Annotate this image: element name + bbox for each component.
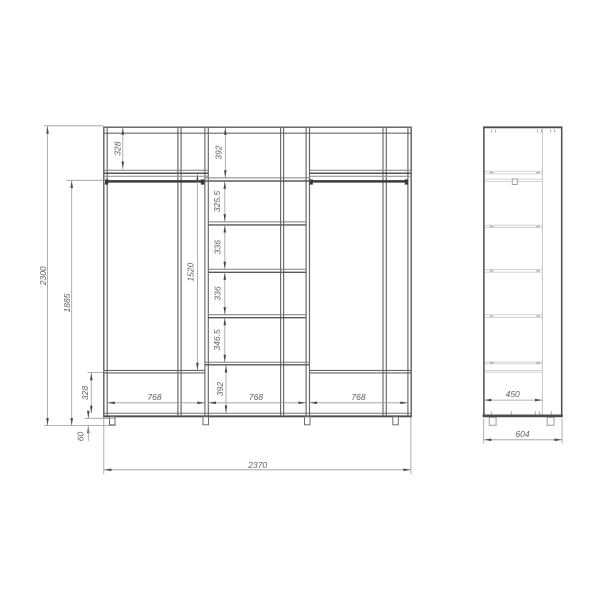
svg-text:328: 328 — [80, 386, 90, 400]
svg-text:392: 392 — [215, 382, 225, 396]
svg-text:325.5: 325.5 — [212, 191, 222, 213]
svg-text:2300: 2300 — [38, 266, 48, 286]
svg-text:346.5: 346.5 — [212, 329, 222, 351]
svg-text:768: 768 — [249, 392, 263, 402]
svg-text:60: 60 — [76, 432, 86, 442]
svg-text:1520: 1520 — [186, 262, 196, 281]
svg-text:768: 768 — [147, 392, 161, 402]
svg-text:2370: 2370 — [247, 460, 267, 470]
svg-text:336: 336 — [213, 286, 223, 300]
svg-text:328: 328 — [112, 141, 122, 155]
svg-text:336: 336 — [213, 240, 223, 254]
svg-text:1885: 1885 — [62, 293, 72, 312]
svg-text:392: 392 — [213, 145, 223, 159]
svg-text:450: 450 — [506, 389, 520, 399]
svg-text:604: 604 — [515, 429, 529, 439]
svg-text:768: 768 — [351, 392, 365, 402]
